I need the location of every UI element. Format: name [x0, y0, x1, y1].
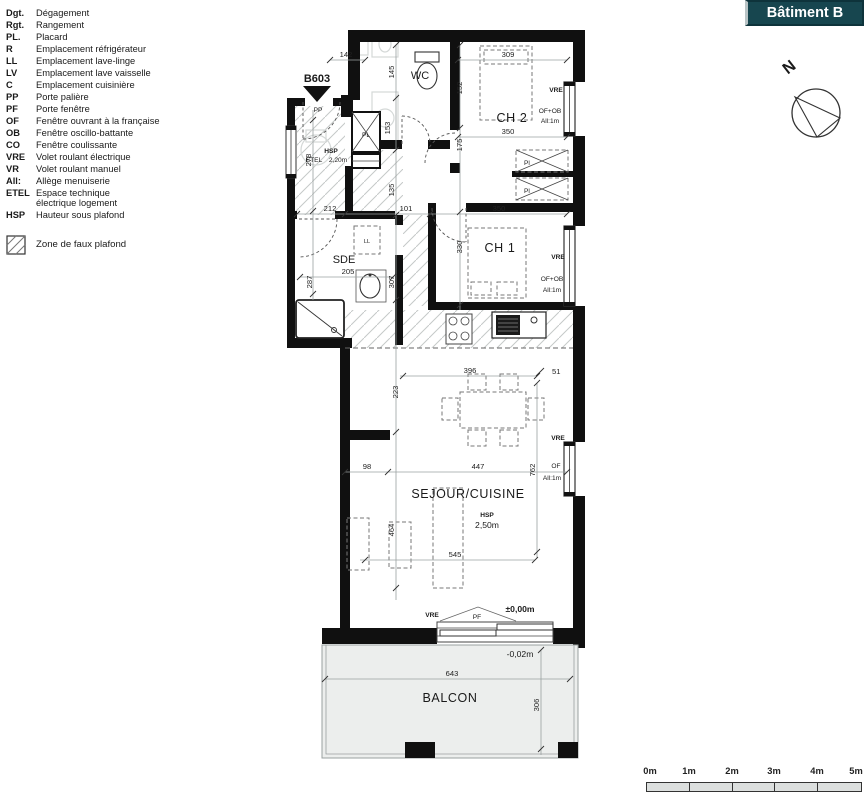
room-label-ch1: CH 1 — [485, 241, 516, 255]
scale-tick-label: 2m — [725, 766, 738, 776]
all1m-sejour: All:1m — [543, 475, 562, 482]
dim: 101 — [400, 204, 413, 213]
scale-tick — [732, 783, 733, 791]
floorplan-drawing: N — [0, 0, 864, 800]
dim: 287 — [305, 276, 314, 289]
hsp-sejour: HSP — [480, 512, 494, 519]
dim: 306 — [532, 699, 541, 712]
dim: 396 — [464, 366, 477, 375]
ofob-ch2: OF+OB — [539, 108, 562, 115]
apartment-pointer — [303, 86, 331, 102]
window-ch2 — [564, 82, 587, 136]
compass-circle — [792, 89, 840, 137]
vre-sejour: VRE — [551, 435, 565, 442]
of-sejour: OF — [551, 463, 560, 470]
dim: 205 — [342, 267, 355, 276]
scale-tick-label: 4m — [810, 766, 823, 776]
room-label-wc: WC — [411, 70, 429, 82]
level-balcony: -0,02m — [507, 649, 534, 659]
scale-tick-label: 0m — [643, 766, 656, 776]
dim: 447 — [472, 462, 485, 471]
dim: 135 — [387, 184, 396, 197]
vre-balcony: VRE — [425, 612, 439, 619]
dim: 223 — [391, 386, 400, 399]
scale-bar: 0m 1m 2m 3m 4m 5m — [646, 766, 862, 796]
apartment-id: B603 — [304, 73, 330, 85]
vre-ch2: VRE — [549, 87, 563, 94]
floorplan-page: Dgt.Dégagement Rgt.Rangement PL.Placard … — [0, 0, 864, 800]
dim: 175 — [455, 139, 464, 152]
ofob-ch1: OF+OB — [541, 276, 564, 283]
dim: 330 — [455, 241, 464, 254]
dim: 142 — [340, 50, 353, 59]
label-pl-a: Pl — [524, 160, 530, 167]
scale-bar-track — [646, 782, 862, 792]
dining-table — [442, 374, 544, 446]
label-etel: ETEL — [306, 157, 323, 164]
hsp-entry: HSP — [324, 148, 338, 155]
scale-tick — [689, 783, 690, 791]
scale-tick — [817, 783, 818, 791]
dim: 98 — [363, 462, 371, 471]
balcony-door — [437, 607, 553, 642]
label-pp: PP — [314, 107, 323, 114]
dim: 464 — [387, 524, 396, 537]
compass-needle — [795, 97, 840, 137]
dim: 152 — [455, 82, 464, 95]
sofa-main — [433, 488, 463, 588]
room-label-sejour: SEJOUR/CUISINE — [411, 487, 524, 501]
window-entry — [285, 126, 297, 178]
room-label-ch2: CH 2 — [497, 111, 528, 125]
label-pl-entry: PL — [362, 132, 370, 139]
hsp-entry-value: 2,20m — [329, 157, 348, 164]
scale-tick-label: 1m — [682, 766, 695, 776]
pf-balcony: PF — [473, 614, 481, 621]
dim: 212 — [324, 204, 337, 213]
window-ch1 — [564, 226, 587, 306]
label-pl-b: Pl — [524, 188, 530, 195]
dim: 350 — [493, 204, 506, 213]
room-label-balcon: BALCON — [422, 691, 477, 705]
dim: 545 — [449, 550, 462, 559]
vre-ch1: VRE — [551, 254, 565, 261]
dim: 350 — [502, 127, 515, 136]
dim: 153 — [383, 122, 392, 135]
dim: 307 — [387, 276, 396, 289]
dim: 309 — [502, 50, 515, 59]
scale-tick — [774, 783, 775, 791]
all1m-ch1: All:1m — [543, 287, 562, 294]
dim: 51 — [552, 367, 560, 376]
north-arrow: N — [780, 57, 840, 137]
room-label-sde: SDE — [333, 254, 356, 266]
level-zero: ±0,00m — [505, 604, 534, 614]
scale-tick-label: 3m — [767, 766, 780, 776]
dim: 145 — [387, 66, 396, 79]
entry-closets — [352, 112, 380, 168]
sofa-side — [347, 518, 369, 570]
dim: 643 — [446, 669, 459, 678]
dim: 762 — [528, 464, 537, 477]
all1m-ch2: All:1m — [541, 118, 560, 125]
hsp-sejour-value: 2,50m — [475, 520, 499, 530]
label-ll: LL — [364, 239, 370, 245]
north-letter: N — [780, 57, 800, 78]
window-sejour — [564, 442, 587, 496]
scale-tick-label: 5m — [849, 766, 862, 776]
